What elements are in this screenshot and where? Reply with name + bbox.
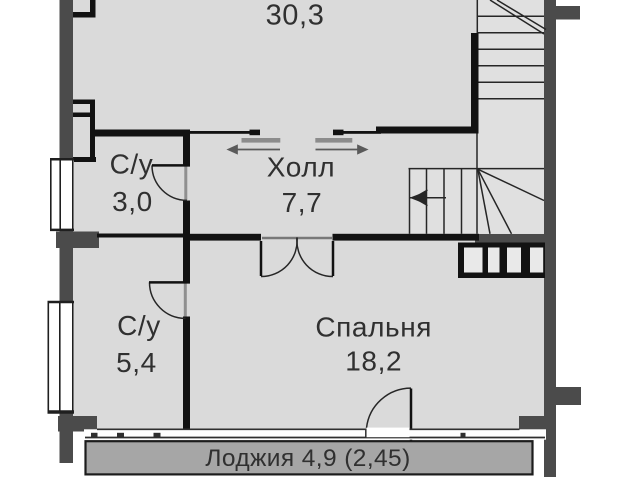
svg-text:30,3: 30,3 (266, 0, 325, 32)
svg-text:5,4: 5,4 (116, 347, 157, 378)
svg-text:Холл: Холл (267, 152, 335, 183)
svg-text:С/у: С/у (117, 310, 161, 341)
svg-text:Лоджия 4,9 (2,45): Лоджия 4,9 (2,45) (205, 445, 410, 472)
svg-text:Спальня: Спальня (315, 312, 432, 343)
svg-text:7,7: 7,7 (282, 187, 323, 218)
svg-text:С/у: С/у (110, 148, 154, 179)
svg-text:18,2: 18,2 (345, 346, 402, 377)
svg-text:3,0: 3,0 (112, 186, 153, 217)
